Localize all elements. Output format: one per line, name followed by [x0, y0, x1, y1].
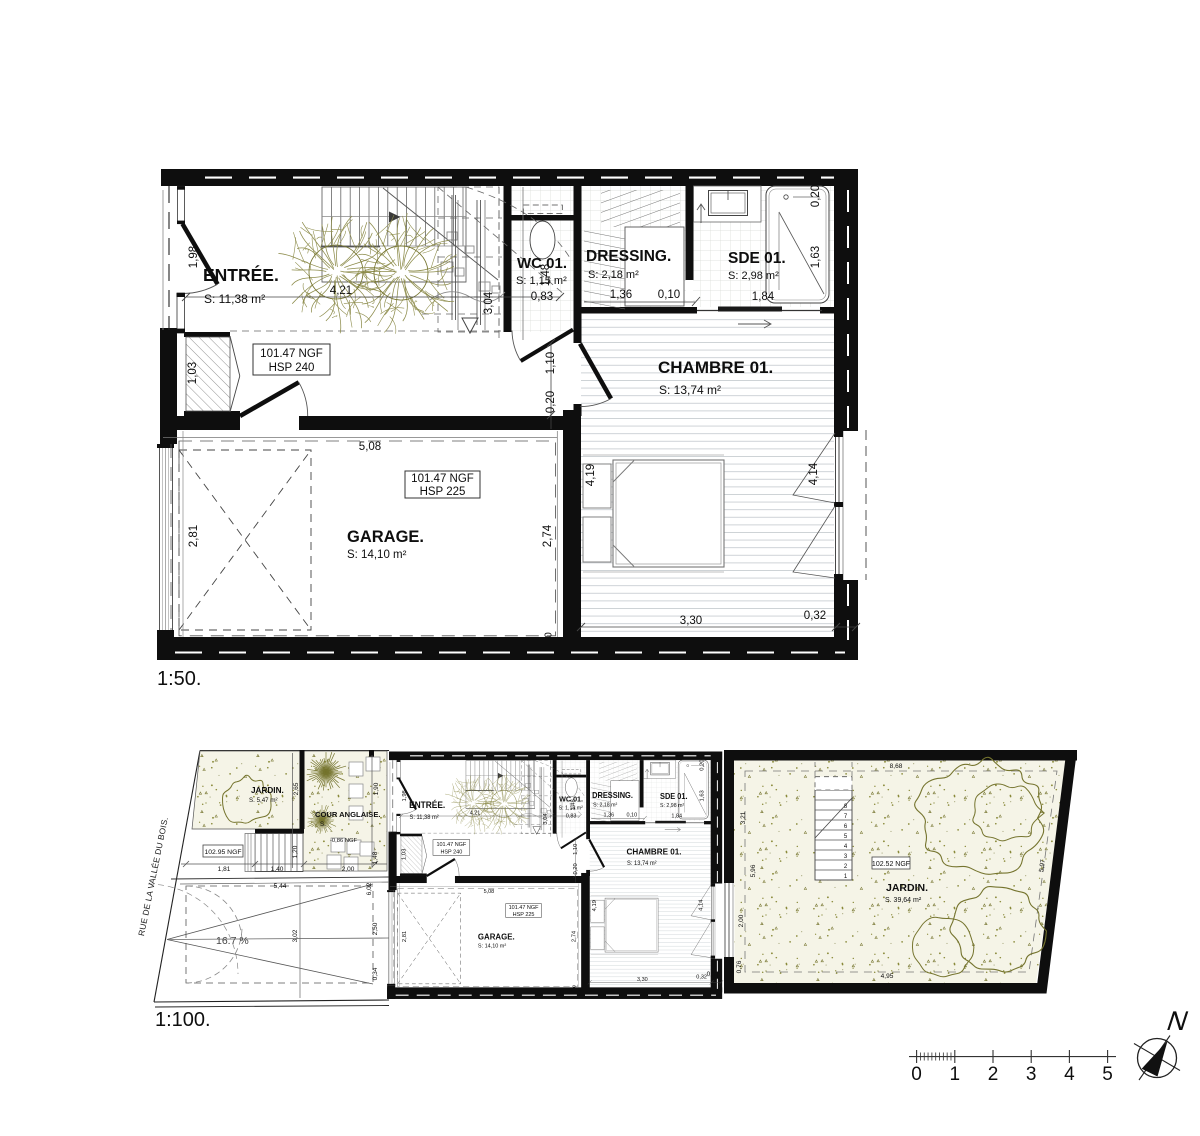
svg-text:5,96: 5,96 — [750, 864, 757, 877]
svg-text:GARAGE.: GARAGE. — [347, 528, 424, 546]
svg-text:SDE 01.: SDE 01. — [728, 250, 786, 267]
svg-text:S. 5,47 m²: S. 5,47 m² — [249, 797, 278, 804]
svg-text:1,84: 1,84 — [752, 291, 775, 303]
svg-text:ENTRÉE.: ENTRÉE. — [203, 264, 279, 285]
svg-text:S. 39,64 m²: S. 39,64 m² — [885, 897, 922, 904]
svg-text:1,48: 1,48 — [372, 851, 379, 864]
svg-text:3,30: 3,30 — [680, 615, 702, 627]
svg-text:5: 5 — [1102, 1064, 1113, 1085]
svg-text:-0,86 NGF: -0,86 NGF — [330, 838, 358, 844]
svg-text:2: 2 — [988, 1064, 999, 1085]
svg-text:0,32: 0,32 — [804, 610, 826, 622]
svg-text:4,95: 4,95 — [881, 973, 894, 980]
svg-text:COUR ANGLAISE.: COUR ANGLAISE. — [315, 810, 381, 819]
svg-text:4: 4 — [1064, 1064, 1075, 1085]
svg-text:3,04: 3,04 — [483, 291, 495, 314]
svg-text:16.7 %: 16.7 % — [216, 935, 249, 947]
svg-text:4,19: 4,19 — [585, 464, 597, 486]
svg-text:1:50.: 1:50. — [157, 668, 201, 690]
svg-text:4,14: 4,14 — [808, 462, 820, 485]
svg-text:0,32: 0,32 — [707, 971, 720, 978]
svg-text:DRESSING.: DRESSING. — [586, 248, 671, 265]
svg-text:JARDIN.: JARDIN. — [886, 882, 928, 894]
svg-text:4,21: 4,21 — [330, 285, 352, 297]
svg-text:HSP 240: HSP 240 — [269, 362, 315, 374]
svg-text:3,02: 3,02 — [292, 929, 299, 942]
svg-text:1:100.: 1:100. — [155, 1009, 211, 1031]
svg-text:1,40: 1,40 — [271, 866, 284, 873]
svg-text:0: 0 — [544, 632, 555, 638]
svg-text:5,44: 5,44 — [274, 883, 287, 890]
svg-text:S: 14,10 m²: S: 14,10 m² — [347, 549, 407, 561]
svg-text:5,08: 5,08 — [359, 441, 381, 453]
svg-text:1: 1 — [950, 1064, 961, 1085]
svg-text:101.47 NGF: 101.47 NGF — [260, 348, 323, 360]
svg-text:1,10: 1,10 — [545, 352, 557, 374]
svg-text:102.95 NGF: 102.95 NGF — [204, 849, 241, 856]
svg-text:0,10: 0,10 — [658, 289, 680, 301]
svg-text:HSP 225: HSP 225 — [420, 486, 466, 498]
svg-text:1,03: 1,03 — [187, 362, 199, 384]
svg-text:2,00: 2,00 — [342, 866, 355, 873]
svg-text:1,63: 1,63 — [810, 246, 822, 268]
svg-text:S: 13,74 m²: S: 13,74 m² — [659, 383, 721, 397]
svg-text:2,74: 2,74 — [542, 524, 554, 547]
svg-text:3: 3 — [1026, 1064, 1037, 1085]
svg-text:2,00: 2,00 — [738, 914, 745, 927]
svg-text:0,76: 0,76 — [736, 960, 743, 973]
svg-text:S: 2,98 m²: S: 2,98 m² — [728, 270, 779, 282]
svg-text:2,81: 2,81 — [188, 525, 200, 547]
svg-text:101.47 NGF: 101.47 NGF — [411, 473, 474, 485]
svg-text:0,20: 0,20 — [810, 185, 822, 207]
svg-text:0: 0 — [911, 1064, 922, 1085]
svg-text:1,81: 1,81 — [218, 866, 231, 873]
svg-text:0,34: 0,34 — [372, 967, 379, 980]
svg-text:0,83: 0,83 — [531, 291, 553, 303]
svg-text:1,90: 1,90 — [373, 782, 380, 795]
svg-text:S: 2,18 m²: S: 2,18 m² — [588, 269, 639, 281]
svg-text:S: 11,38 m²: S: 11,38 m² — [204, 292, 265, 306]
svg-text:CHAMBRE 01.: CHAMBRE 01. — [658, 358, 773, 377]
svg-text:0,20: 0,20 — [545, 391, 557, 413]
svg-text:8,68: 8,68 — [890, 763, 903, 770]
svg-text:102.52 NGF: 102.52 NGF — [872, 861, 910, 868]
svg-text:S: 1,15 m²: S: 1,15 m² — [516, 275, 567, 287]
svg-text:1,36: 1,36 — [610, 289, 632, 301]
svg-text:WC 01.: WC 01. — [517, 255, 567, 272]
svg-text:3,21: 3,21 — [740, 811, 747, 824]
svg-text:JARDIN.: JARDIN. — [251, 786, 284, 795]
svg-text:S.: S. — [320, 821, 326, 828]
svg-text:2,50: 2,50 — [372, 922, 379, 935]
svg-text:1,98: 1,98 — [188, 246, 200, 268]
svg-text:1,20: 1,20 — [292, 845, 299, 858]
svg-text:2,65: 2,65 — [293, 782, 300, 795]
svg-text:6,02: 6,02 — [366, 882, 373, 895]
